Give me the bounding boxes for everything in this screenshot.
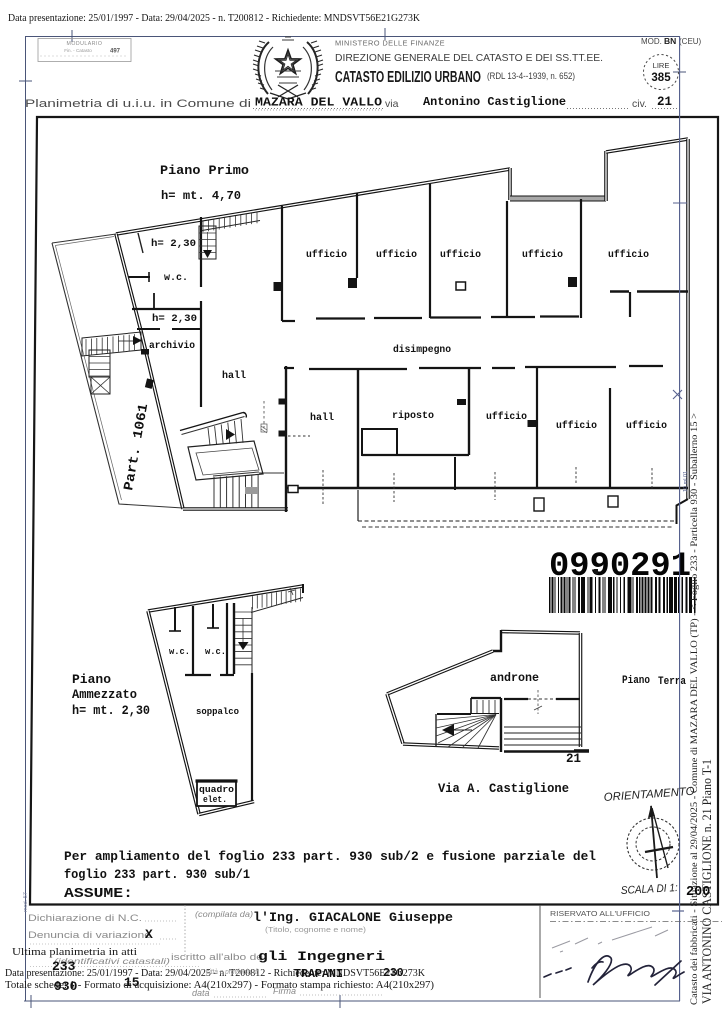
svg-text:ufficio: ufficio: [440, 249, 481, 261]
svg-text:ufficio: ufficio: [376, 249, 417, 261]
svg-text:gli Ingegneri: gli Ingegneri: [258, 950, 385, 964]
svg-text:Firma: Firma: [273, 986, 296, 996]
svg-text:497: 497: [110, 49, 121, 55]
svg-text:Planimetria di u.i.u. in Comun: Planimetria di u.i.u. in Comune di: [25, 98, 251, 110]
svg-text:hall: hall: [222, 370, 246, 382]
svg-text:DIREZIONE GENERALE DEL CATASTO: DIREZIONE GENERALE DEL CATASTO E DEI SS.…: [335, 52, 603, 64]
svg-text:SCALA DI 1:: SCALA DI 1:: [621, 882, 679, 897]
svg-text:Antonino Castiglione: Antonino Castiglione: [423, 95, 566, 109]
svg-text:Per ampliamento del foglio 233: Per ampliamento del foglio 233 part. 930…: [64, 850, 596, 864]
svg-text:ufficio: ufficio: [626, 420, 667, 432]
svg-text:Dichiarazione di N.C.: Dichiarazione di N.C.: [28, 913, 142, 924]
svg-text:Ammezzato: Ammezzato: [72, 688, 137, 702]
svg-text:(Titolo, cognome e nome): (Titolo, cognome e nome): [265, 925, 367, 934]
svg-text:Part. 1061: Part. 1061: [122, 403, 152, 492]
svg-text:civ.: civ.: [632, 98, 647, 110]
svg-text:21: 21: [657, 95, 672, 109]
svg-text:385: 385: [651, 72, 671, 84]
svg-text:soppalco: soppalco: [196, 706, 239, 717]
svg-text:data: data: [192, 988, 210, 998]
svg-text:(RDL 13-4--1939, n. 652): (RDL 13-4--1939, n. 652): [487, 71, 575, 82]
svg-text:Denuncia di variazione: Denuncia di variazione: [28, 930, 151, 941]
svg-text:10 ml.01: 10 ml.01: [683, 471, 689, 492]
svg-text:h= mt. 2,30: h= mt. 2,30: [72, 704, 150, 718]
svg-text:(compilata da): (compilata da): [195, 910, 253, 919]
svg-text:Fin. - Catasto: Fin. - Catasto: [64, 48, 92, 53]
svg-text:riposto: riposto: [392, 410, 434, 422]
svg-text:w.c.: w.c.: [164, 273, 188, 284]
svg-text:via: via: [385, 98, 399, 110]
svg-text:Via A. Castiglione: Via A. Castiglione: [438, 782, 569, 796]
svg-text:VIA ANTONINO CASTIGLIONE n. 21: VIA ANTONINO CASTIGLIONE n. 21 Piano T-1: [700, 759, 714, 1004]
svg-text:Totale schede: 1 - Formato di: Totale schede: 1 - Formato di acquisizio…: [5, 980, 434, 991]
svg-text:Piano: Piano: [622, 675, 650, 687]
svg-text:città o provincia di: città o provincia di: [206, 969, 258, 976]
svg-text:Data presentazione: 25/01/1997: Data presentazione: 25/01/1997 - Data: 2…: [8, 12, 420, 24]
svg-text:MOD.: MOD.: [641, 37, 662, 46]
svg-text:200: 200: [686, 885, 710, 900]
svg-text:w.c.: w.c.: [169, 646, 190, 657]
svg-text:ufficio: ufficio: [556, 420, 597, 432]
svg-text:hall: hall: [310, 412, 334, 424]
svg-text:MAZARA DEL VALLO: MAZARA DEL VALLO: [255, 96, 382, 110]
svg-text:MINISTERO DELLE FINANZE: MINISTERO DELLE FINANZE: [335, 39, 445, 48]
svg-text:h= mt. 4,70: h= mt. 4,70: [161, 189, 241, 203]
svg-text:archivio: archivio: [149, 340, 195, 352]
svg-text:X: X: [145, 927, 153, 942]
svg-text:w.c.: w.c.: [205, 646, 226, 657]
svg-text:ORIENTAMENTO: ORIENTAMENTO: [603, 786, 695, 804]
svg-text:Piano Primo: Piano Primo: [160, 163, 249, 178]
svg-text:h= 2,30: h= 2,30: [151, 238, 196, 250]
svg-text:Piano: Piano: [72, 673, 111, 687]
svg-text:230: 230: [383, 967, 404, 980]
svg-text:CATASTO EDILIZIO URBANO: CATASTO EDILIZIO URBANO: [335, 69, 481, 86]
svg-text:ufficio: ufficio: [522, 249, 563, 261]
svg-text:Terra: Terra: [658, 676, 686, 688]
svg-text:l'Ing. GIACALONE Giuseppe: l'Ing. GIACALONE Giuseppe: [253, 911, 453, 925]
svg-text:foglio 233 part. 930 sub/1: foglio 233 part. 930 sub/1: [64, 868, 250, 882]
svg-text:quadro: quadro: [199, 785, 234, 795]
svg-text:h= 2,30: h= 2,30: [152, 313, 197, 325]
svg-text:MODULARIO: MODULARIO: [67, 41, 103, 47]
svg-text:ufficio: ufficio: [608, 249, 649, 261]
svg-text:ufficio: ufficio: [486, 411, 527, 423]
svg-text:iscritto all'albo de: iscritto all'albo de: [171, 952, 263, 962]
svg-text:(CEU): (CEU): [679, 37, 702, 46]
svg-text:ASSUME:: ASSUME:: [64, 887, 133, 902]
svg-text:disimpegno: disimpegno: [393, 344, 451, 356]
svg-text:BN: BN: [664, 36, 676, 46]
svg-text:LIRE: LIRE: [653, 61, 670, 70]
svg-text:RISERVATO ALL'UFFICIO: RISERVATO ALL'UFFICIO: [550, 909, 650, 918]
svg-text:mod. 57: mod. 57: [23, 892, 29, 912]
svg-text:ufficio: ufficio: [306, 249, 347, 261]
svg-text:androne: androne: [490, 672, 539, 685]
svg-text:Catasto dei fabbricati - Situa: Catasto dei fabbricati - Situazione al 2…: [689, 413, 700, 1005]
svg-text:21: 21: [566, 752, 581, 766]
svg-text:elet.: elet.: [203, 795, 227, 805]
